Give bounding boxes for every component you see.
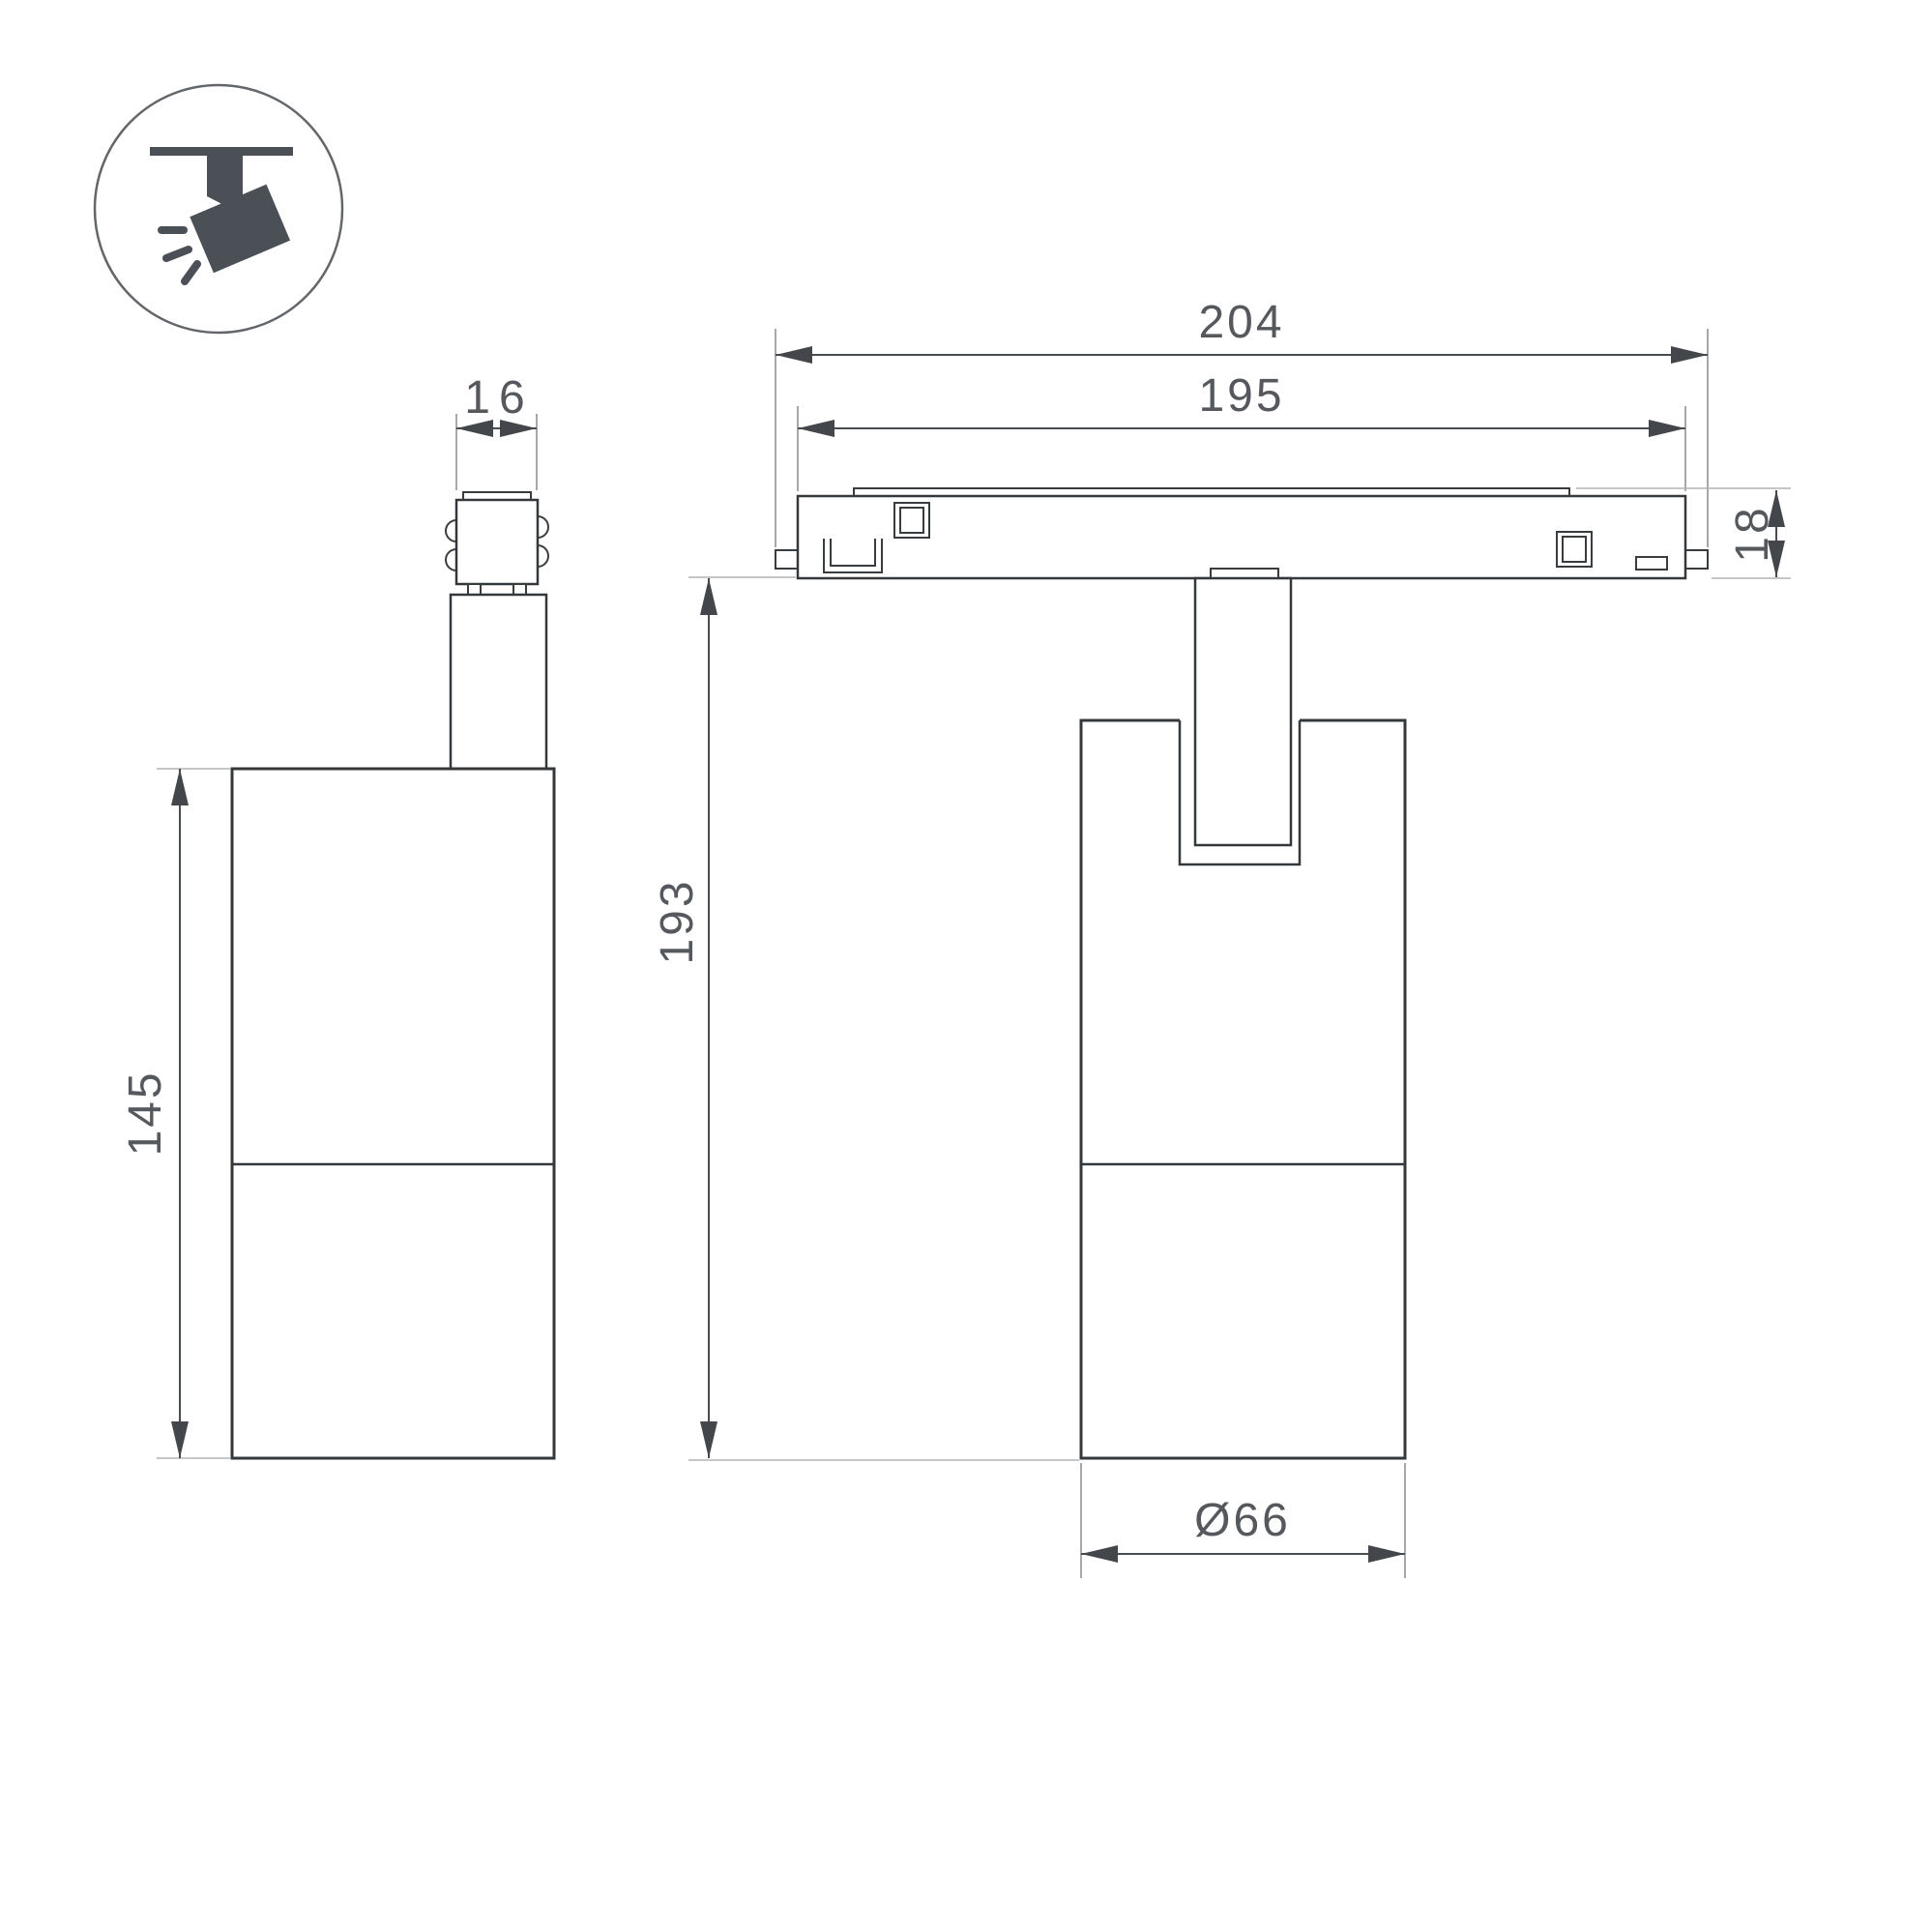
- side-body: [232, 769, 554, 1458]
- track-total-length-label: 204: [1198, 297, 1284, 348]
- body-height-label: 145: [120, 1069, 171, 1156]
- track-body: [798, 496, 1685, 578]
- overall-height-label: 193: [652, 878, 703, 964]
- arrow-195-right: [1649, 420, 1685, 437]
- track-window-right-inner: [1563, 537, 1586, 562]
- front-stem-collar: [1211, 569, 1278, 578]
- track-window-left-inner: [900, 508, 923, 533]
- body-diameter-label: Ø66: [1194, 1495, 1291, 1546]
- connector-width-label: 16: [464, 372, 533, 424]
- side-connector: [456, 500, 538, 584]
- side-connector-foot-right: [513, 584, 526, 595]
- dimension-drawing-canvas: 204 195 16 18 193 145 Ø66: [0, 0, 1932, 1932]
- side-view: [232, 492, 554, 1458]
- arrow-204-left: [776, 346, 812, 364]
- side-connector-foot-left: [468, 584, 481, 595]
- track-length-label: 195: [1198, 370, 1284, 422]
- front-stem: [1195, 578, 1291, 845]
- track-height-label: 18: [1727, 505, 1778, 562]
- arrow-145-bottom: [171, 1421, 189, 1458]
- side-stem: [451, 595, 546, 769]
- track-tab-right: [1685, 550, 1708, 569]
- arrow-d66-left: [1081, 1545, 1118, 1563]
- arrow-193-top: [700, 578, 717, 615]
- track-slot-right: [1636, 557, 1667, 570]
- arrow-195-left: [798, 420, 834, 437]
- arrow-204-right: [1671, 346, 1708, 364]
- arrow-145-top: [171, 769, 189, 805]
- track-tab-left: [776, 550, 798, 569]
- drawing-svg: 204 195 16 18 193 145 Ø66: [0, 0, 1932, 1932]
- arrow-d66-right: [1368, 1545, 1405, 1563]
- front-view: [776, 488, 1708, 1458]
- track-spotlight-icon: [95, 85, 342, 333]
- arrow-193-bottom: [700, 1421, 717, 1458]
